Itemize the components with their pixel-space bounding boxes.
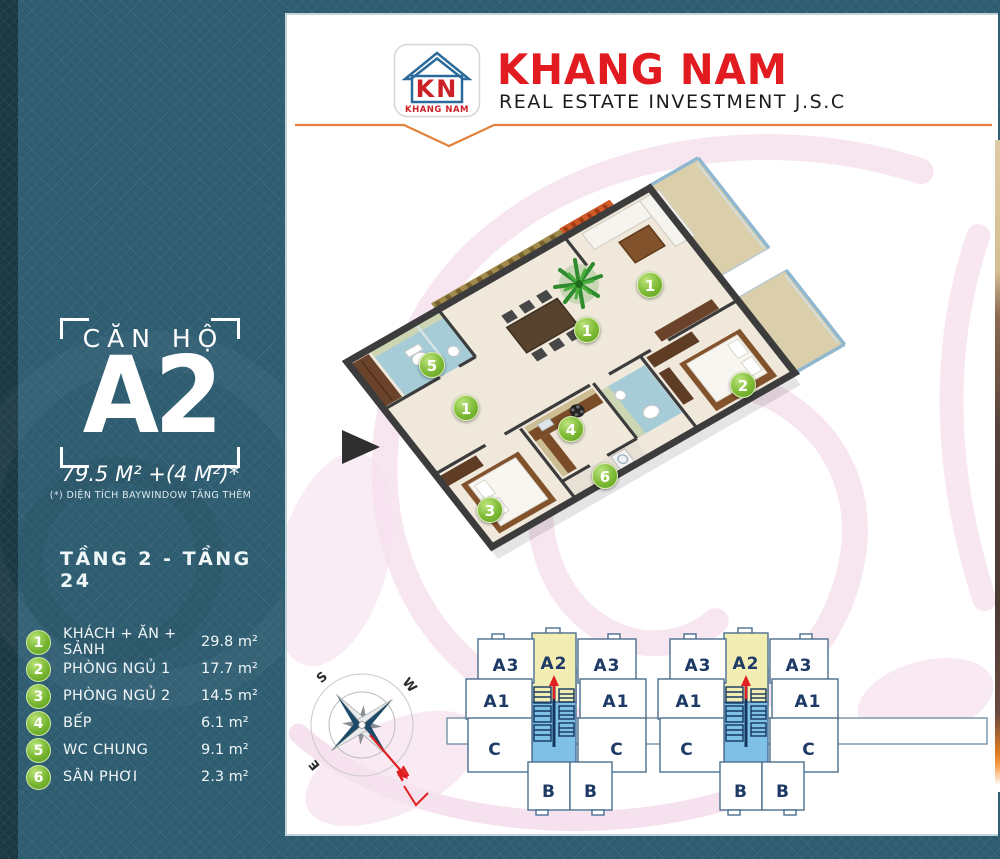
keyplan-label-a2: A2 <box>541 654 568 674</box>
unit-area: 79.5 M² +(4 M²)* <box>18 462 283 486</box>
logo-monogram: KN <box>416 75 459 103</box>
legend-row: 3 PHÒNG NGỦ 2 14.5 m² <box>26 684 275 709</box>
keyplan-label-a1-right: A1 <box>603 692 630 712</box>
brand-subtitle: REAL ESTATE INVESTMENT J.S.C <box>499 91 846 113</box>
keyplan-label-b-right: B <box>776 782 790 802</box>
entrance-arrow-icon <box>342 430 380 464</box>
compass-e-label: E <box>306 756 323 772</box>
keyplan-label-a3-left: A3 <box>685 656 712 676</box>
legend-room-label: WC CHUNG <box>63 742 201 758</box>
legend-number-badge: 1 <box>26 630 51 655</box>
legend-row: 6 SÂN PHƠI 2.3 m² <box>26 765 275 790</box>
legend-room-area: 9.1 m² <box>201 742 275 758</box>
khang-nam-logo: KN KHANG NAM <box>393 43 481 121</box>
unit-code: A2 <box>27 330 273 463</box>
legend-room-area: 17.7 m² <box>201 661 275 677</box>
legend-number-badge: 5 <box>26 738 51 763</box>
area-note: (*) DIỆN TÍCH BAYWINDOW TĂNG THÊM <box>18 490 283 501</box>
legend-row: 4 BẾP 6.1 m² <box>26 711 275 736</box>
keyplan-label-c-left: C <box>680 740 693 760</box>
key-plan: A3 A2 A3 A1 A1 C C B B <box>434 614 1000 854</box>
keyplan-label-a1-left: A1 <box>676 692 703 712</box>
legend-row: 5 WC CHUNG 9.1 m² <box>26 738 275 763</box>
legend-room-area: 29.8 m² <box>201 634 275 650</box>
legend-room-area: 6.1 m² <box>201 715 275 731</box>
legend-room-area: 2.3 m² <box>201 769 275 785</box>
keyplan-label-b-left: B <box>734 782 748 802</box>
compass-rose: N S E W <box>300 654 435 814</box>
keyplan-label-c-right: C <box>610 740 623 760</box>
legend-room-label: SÂN PHƠI <box>63 769 201 785</box>
room-legend: 1 KHÁCH + ĂN + SẢNH 29.8 m² 2 PHÒNG NGỦ … <box>26 630 275 792</box>
legend-room-label: BẾP <box>63 715 201 731</box>
sidebar: CĂN HỘ A2 79.5 M² +(4 M²)* (*) DIỆN TÍCH… <box>18 0 283 859</box>
floor-plan-3d <box>302 142 862 622</box>
floor-range: TẦNG 2 - TẦNG 24 <box>60 548 283 592</box>
legend-row: 2 PHÒNG NGỦ 1 17.7 m² <box>26 657 275 682</box>
legend-number-badge: 6 <box>26 765 51 790</box>
legend-row: 1 KHÁCH + ĂN + SẢNH 29.8 m² <box>26 630 275 655</box>
legend-number-badge: 3 <box>26 684 51 709</box>
keyplan-label-a3-right: A3 <box>786 656 813 676</box>
flyer-page: CĂN HỘ A2 79.5 M² +(4 M²)* (*) DIỆN TÍCH… <box>0 0 1000 859</box>
keyplan-label-c-left: C <box>488 740 501 760</box>
legend-room-label: KHÁCH + ĂN + SẢNH <box>63 626 201 658</box>
keyplan-label-a3-left: A3 <box>493 656 520 676</box>
legend-room-label: PHÒNG NGỦ 2 <box>63 688 201 704</box>
tower-footprint: A3 A2 A3 A1 A1 C C B B <box>658 628 838 815</box>
adjacent-sheet-edge <box>995 140 1000 792</box>
content-panel: KN KHANG NAM KHANG NAM REAL ESTATE INVES… <box>285 13 998 836</box>
keyplan-label-a3-right: A3 <box>594 656 621 676</box>
left-dark-strip <box>0 0 18 859</box>
tower-footprint: A3 A2 A3 A1 A1 C C B B <box>466 628 646 815</box>
keyplan-label-b-left: B <box>542 782 556 802</box>
brand-title: KHANG NAM <box>497 45 788 94</box>
legend-number-badge: 2 <box>26 657 51 682</box>
logo-name: KHANG NAM <box>405 105 469 115</box>
keyplan-label-a1-left: A1 <box>484 692 511 712</box>
keyplan-label-a1-right: A1 <box>795 692 822 712</box>
compass-s-label: S <box>314 669 331 687</box>
legend-room-area: 14.5 m² <box>201 688 275 704</box>
keyplan-label-c-right: C <box>802 740 815 760</box>
keyplan-label-b-right: B <box>584 782 598 802</box>
legend-room-label: PHÒNG NGỦ 1 <box>63 661 201 677</box>
legend-number-badge: 4 <box>26 711 51 736</box>
keyplan-label-a2: A2 <box>733 654 760 674</box>
